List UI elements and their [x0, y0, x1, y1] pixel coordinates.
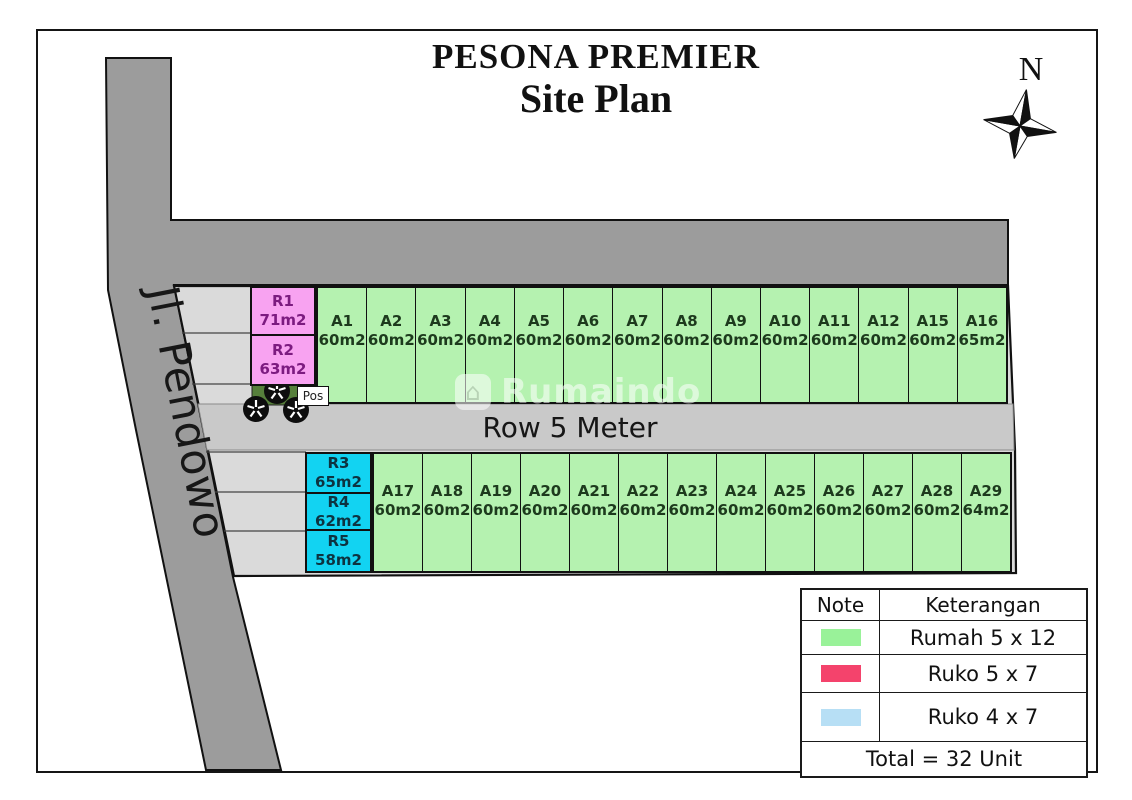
plot-size: 62m2 [315, 512, 362, 531]
plot-size: 60m2 [571, 501, 618, 520]
plot-size: 60m2 [811, 331, 858, 350]
house-row-bottom: A1760m2A1860m2A1960m2A2060m2A2160m2A2260… [372, 452, 1012, 573]
plot-size: 65m2 [958, 331, 1005, 350]
legend-rows: Rumah 5 x 12Ruko 5 x 7Ruko 4 x 7 [802, 621, 1086, 742]
legend-row-label: Ruko 5 x 7 [880, 655, 1086, 692]
plot-size: 65m2 [315, 473, 362, 492]
legend-total: Total = 32 Unit [802, 742, 1086, 776]
plot-id: R5 [328, 532, 350, 551]
plot-id: A22 [627, 482, 659, 501]
legend-row: Rumah 5 x 12 [802, 621, 1086, 655]
plot-id: A10 [769, 312, 801, 331]
plot-A1: A160m2 [318, 288, 366, 402]
plot-A15: A1560m2 [908, 288, 957, 402]
plot-id: A8 [676, 312, 698, 331]
legend-header-note: Note [802, 590, 880, 620]
plot-size: 60m2 [663, 331, 710, 350]
plot-A7: A760m2 [612, 288, 661, 402]
plot-size: 71m2 [260, 311, 307, 330]
plot-id: A9 [725, 312, 747, 331]
legend-swatch-cell [802, 621, 880, 654]
plot-id: A19 [480, 482, 512, 501]
plot-A11: A1160m2 [809, 288, 858, 402]
plot-A9: A960m2 [711, 288, 760, 402]
plot-id: A7 [626, 312, 648, 331]
plot-A18: A1860m2 [422, 454, 471, 571]
plot-A22: A2260m2 [618, 454, 667, 571]
plot-R4: R462m2 [307, 492, 370, 529]
page-subtitle: Site Plan [316, 77, 876, 121]
plot-size: 60m2 [762, 331, 809, 350]
plot-R1: R171m2 [252, 288, 314, 334]
legend-color-swatch [821, 665, 861, 682]
plot-A28: A2860m2 [912, 454, 961, 571]
plot-id: A12 [867, 312, 899, 331]
plot-id: R4 [328, 493, 350, 512]
plot-id: A1 [331, 312, 353, 331]
legend-table: Note Keterangan Rumah 5 x 12Ruko 5 x 7Ru… [800, 588, 1088, 778]
plot-size: 60m2 [669, 501, 716, 520]
plot-A27: A2760m2 [863, 454, 912, 571]
plot-id: A18 [431, 482, 463, 501]
plot-id: A20 [529, 482, 561, 501]
plot-size: 60m2 [368, 331, 415, 350]
plot-A29: A2964m2 [961, 454, 1010, 571]
legend-row-label: Ruko 4 x 7 [880, 693, 1086, 741]
plot-size: 60m2 [375, 501, 422, 520]
plot-id: A24 [725, 482, 757, 501]
page-title: PESONA PREMIER Site Plan [316, 38, 876, 121]
ruko-column-bottom: R365m2R462m2R558m2 [305, 452, 372, 573]
plot-size: 60m2 [767, 501, 814, 520]
plot-A12: A1260m2 [858, 288, 907, 402]
compass-north-label: N [1019, 51, 1044, 88]
house-row-top: A160m2A260m2A360m2A460m2A560m2A660m2A760… [316, 286, 1008, 404]
legend-label-text: Ruko 5 x 7 [928, 662, 1038, 686]
plot-size: 60m2 [473, 501, 520, 520]
security-post-box: Pos [297, 386, 329, 406]
plot-A5: A560m2 [514, 288, 563, 402]
plot-A20: A2060m2 [520, 454, 569, 571]
plot-id: A5 [528, 312, 550, 331]
plot-A2: A260m2 [366, 288, 415, 402]
plot-size: 60m2 [466, 331, 513, 350]
legend-label-text: Rumah 5 x 12 [910, 626, 1056, 650]
plot-A10: A1060m2 [760, 288, 809, 402]
plot-id: A23 [676, 482, 708, 501]
compass-rose: N [958, 42, 1088, 176]
plot-R3: R365m2 [307, 454, 370, 492]
legend-swatch-cell [802, 655, 880, 692]
legend-color-swatch [821, 629, 861, 646]
plot-id: A4 [479, 312, 501, 331]
plot-A8: A860m2 [662, 288, 711, 402]
plot-size: 60m2 [914, 501, 961, 520]
plot-size: 60m2 [860, 331, 907, 350]
plot-size: 64m2 [963, 501, 1010, 520]
plot-id: A28 [921, 482, 953, 501]
plot-size: 60m2 [712, 331, 759, 350]
plot-size: 60m2 [516, 331, 563, 350]
plot-id: A6 [577, 312, 599, 331]
compass-star-icon [978, 83, 1063, 165]
legend-color-swatch [821, 709, 861, 726]
plot-R2: R263m2 [252, 334, 314, 384]
plot-size: 60m2 [614, 331, 661, 350]
plot-id: A15 [916, 312, 948, 331]
plot-A24: A2460m2 [716, 454, 765, 571]
ruko-column-top: R171m2R263m2 [250, 286, 316, 386]
plot-id: A17 [382, 482, 414, 501]
plot-A19: A1960m2 [471, 454, 520, 571]
plot-size: 58m2 [315, 551, 362, 570]
plot-id: A25 [774, 482, 806, 501]
legend-header-row: Note Keterangan [802, 590, 1086, 621]
plot-id: A26 [823, 482, 855, 501]
plot-A26: A2660m2 [814, 454, 863, 571]
plot-size: 60m2 [565, 331, 612, 350]
row-5-meter-label: Row 5 Meter [450, 411, 690, 444]
plot-A4: A460m2 [465, 288, 514, 402]
plot-A25: A2560m2 [765, 454, 814, 571]
plot-A16: A1665m2 [957, 288, 1006, 402]
legend-row: Ruko 5 x 7 [802, 655, 1086, 693]
plot-size: 60m2 [909, 331, 956, 350]
plot-R5: R558m2 [307, 529, 370, 571]
plot-A3: A360m2 [415, 288, 464, 402]
plot-id: A2 [380, 312, 402, 331]
plot-size: 60m2 [417, 331, 464, 350]
plot-size: 60m2 [319, 331, 366, 350]
plot-id: A27 [872, 482, 904, 501]
plot-size: 60m2 [718, 501, 765, 520]
plot-id: R2 [272, 341, 294, 360]
plot-id: A11 [818, 312, 850, 331]
plot-id: R1 [272, 292, 294, 311]
legend-row: Ruko 4 x 7 [802, 693, 1086, 742]
plot-id: A21 [578, 482, 610, 501]
plot-A21: A2160m2 [569, 454, 618, 571]
legend-row-label: Rumah 5 x 12 [880, 621, 1086, 654]
plot-id: R3 [328, 454, 350, 473]
plot-size: 60m2 [865, 501, 912, 520]
plot-size: 60m2 [424, 501, 471, 520]
plot-id: A29 [970, 482, 1002, 501]
project-name: PESONA PREMIER [316, 38, 876, 77]
plot-A6: A660m2 [563, 288, 612, 402]
plot-A17: A1760m2 [374, 454, 422, 571]
plot-size: 63m2 [260, 360, 307, 379]
plot-A23: A2360m2 [667, 454, 716, 571]
plot-size: 60m2 [522, 501, 569, 520]
tree-icon [243, 396, 269, 422]
site-plan-page: PESONA PREMIER Site Plan N Jl. Pendowo R… [0, 0, 1132, 800]
legend-label-text: Ruko 4 x 7 [928, 705, 1038, 729]
legend-header-keterangan: Keterangan [880, 590, 1086, 620]
legend-swatch-cell [802, 693, 880, 741]
plot-id: A16 [966, 312, 998, 331]
plot-id: A3 [430, 312, 452, 331]
plot-size: 60m2 [816, 501, 863, 520]
plot-size: 60m2 [620, 501, 667, 520]
